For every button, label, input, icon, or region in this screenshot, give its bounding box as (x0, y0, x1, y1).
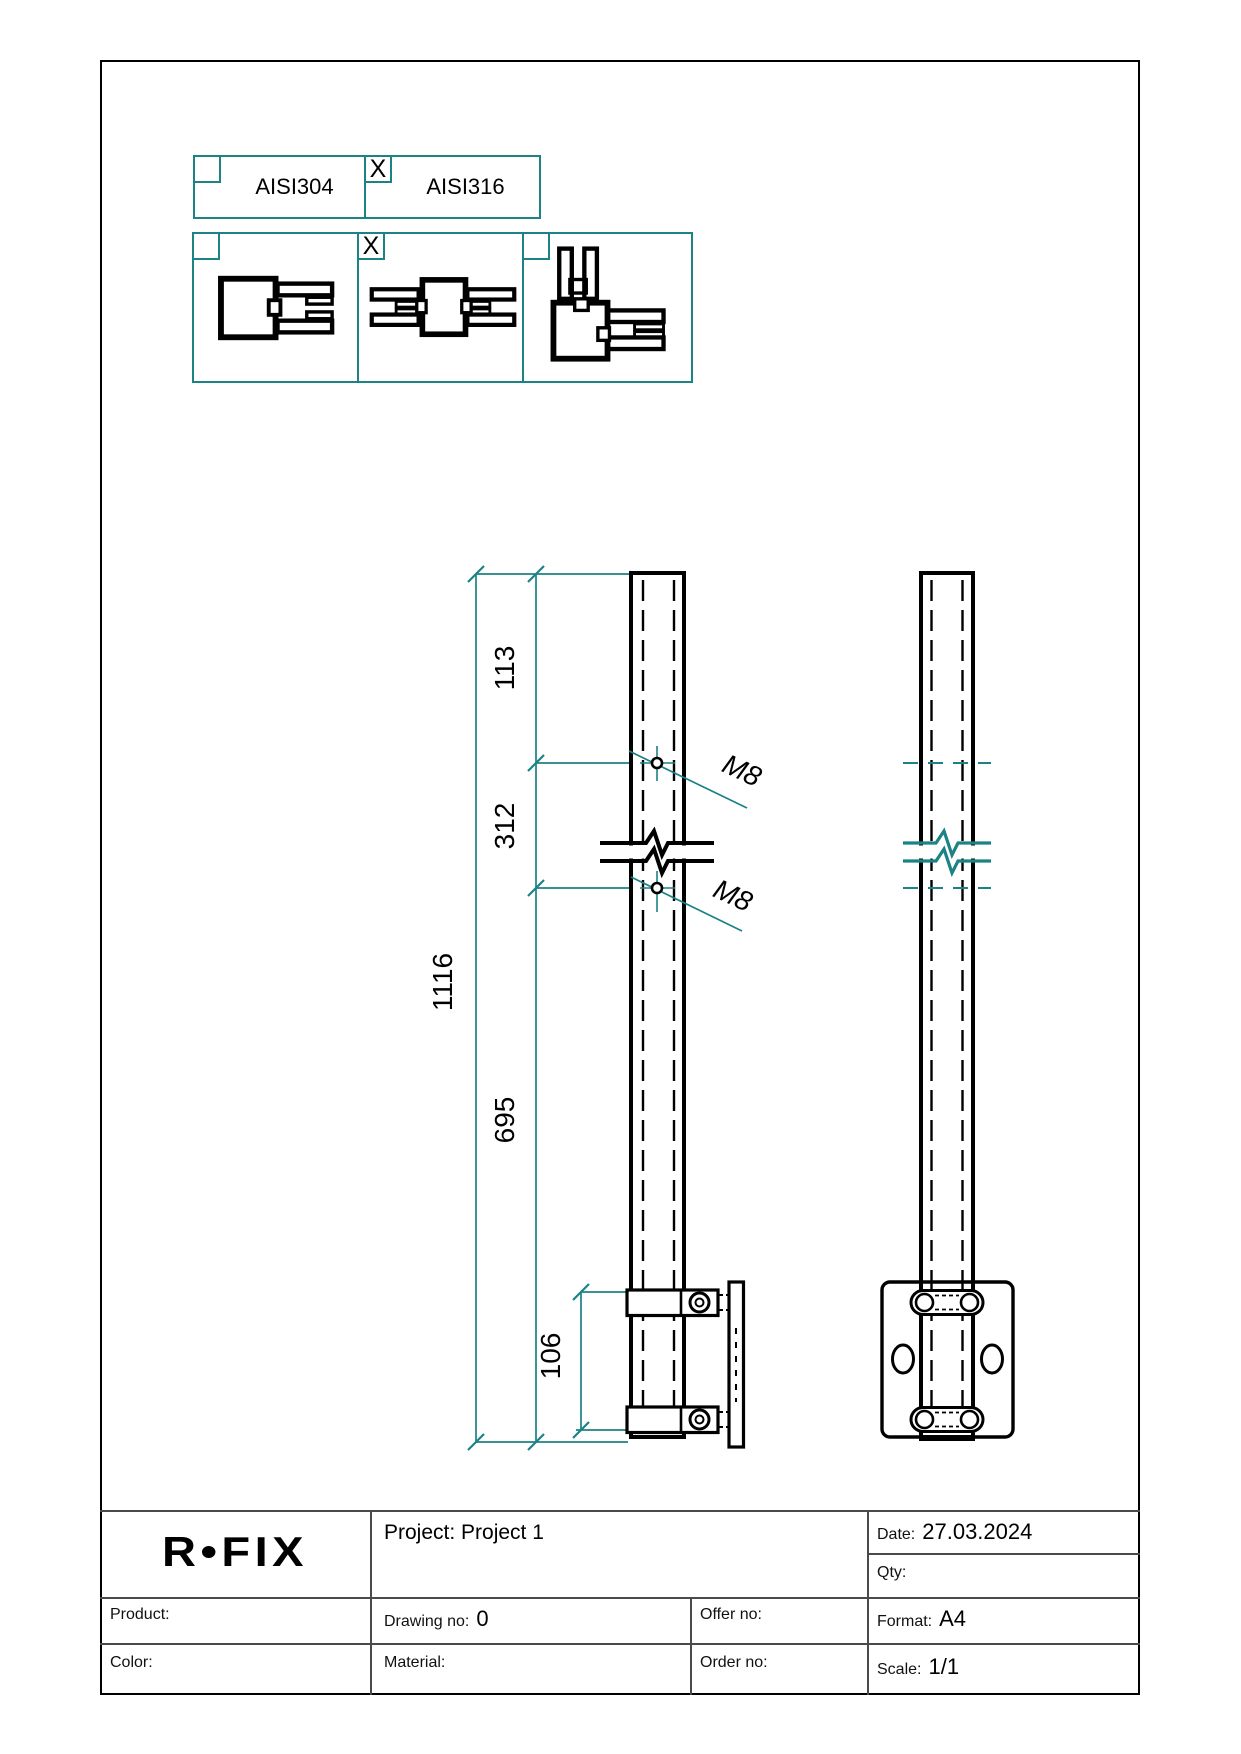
wall-bracket-upper-front (627, 1290, 728, 1316)
plate-slot-right (982, 1345, 1003, 1373)
product-field: Product: (110, 1606, 170, 1624)
dimension-ticks (468, 566, 589, 1450)
dimension-labels: 113 312 1116 695 106 (427, 646, 566, 1380)
project-title: Project: Project 1 (384, 1521, 544, 1545)
material-option-label: AISI316 (400, 174, 504, 200)
dim-1116: 1116 (427, 953, 458, 1011)
company-logo: R•FIX (84, 1528, 386, 1576)
checkbox-aisi304[interactable] (193, 155, 221, 183)
material-field: Material: (384, 1654, 445, 1672)
thread-label-m8-bottom: M8 (709, 873, 758, 918)
date-label: Date: (877, 1526, 915, 1544)
title-block-line (100, 1510, 1140, 1512)
dim-695: 695 (489, 1097, 520, 1144)
checkbox-mount-mid[interactable]: X (357, 232, 385, 260)
date-field: Date: 27.03.2024 (877, 1519, 1032, 1545)
format-value: A4 (939, 1606, 966, 1632)
offer-no-field: Offer no: (700, 1606, 762, 1624)
format-label: Format: (877, 1613, 932, 1631)
title-block-line (867, 1510, 869, 1695)
material-option-aisi316[interactable]: X AISI316 (364, 155, 541, 219)
dim-106: 106 (535, 1333, 566, 1380)
post-corner-mount-icon (538, 242, 678, 374)
thread-label-m8-top: M8 (718, 748, 767, 793)
wall-plate-side-edge (729, 1282, 744, 1447)
order-no-field: Order no: (700, 1654, 768, 1672)
plate-slot-left (893, 1345, 914, 1373)
scale-label: Scale: (877, 1661, 921, 1679)
drawing-no-label: Drawing no: (384, 1613, 469, 1631)
scale-field: Scale: 1/1 (877, 1654, 959, 1680)
post-technical-drawing: 113 312 1116 695 106 M8 M8 (400, 540, 1090, 1460)
mount-option-mid[interactable]: X (357, 232, 528, 383)
drawing-sheet-page: { "material_selector": { "checked_mark":… (0, 0, 1241, 1754)
title-block-line (867, 1553, 1140, 1555)
checkbox-aisi316[interactable]: X (364, 155, 392, 183)
date-value: 27.03.2024 (922, 1519, 1032, 1545)
drawing-no-field: Drawing no: 0 (384, 1606, 489, 1632)
format-field: Format: A4 (877, 1606, 966, 1632)
mount-option-corner[interactable] (522, 232, 693, 383)
qty-field: Qty: (877, 1564, 906, 1582)
fastener-upper-side (911, 1291, 983, 1315)
drawing-no-value: 0 (476, 1606, 488, 1632)
title-block-line (690, 1597, 692, 1695)
post-mid-mount-icon (368, 270, 518, 346)
fastener-lower-side (911, 1408, 983, 1432)
checkbox-mount-corner[interactable] (522, 232, 550, 260)
checkbox-mount-end[interactable] (192, 232, 220, 260)
mount-option-end[interactable] (192, 232, 363, 383)
wall-bracket-lower-front (627, 1407, 728, 1433)
title-block-line (100, 1597, 1140, 1599)
title-block-line (100, 1643, 1140, 1645)
dim-312: 312 (489, 803, 520, 850)
material-option-aisi304[interactable]: AISI304 (193, 155, 370, 219)
dim-113: 113 (489, 646, 520, 691)
post-end-mount-icon (217, 269, 339, 347)
color-field: Color: (110, 1654, 153, 1672)
scale-value: 1/1 (928, 1654, 959, 1680)
material-option-label: AISI304 (229, 174, 333, 200)
